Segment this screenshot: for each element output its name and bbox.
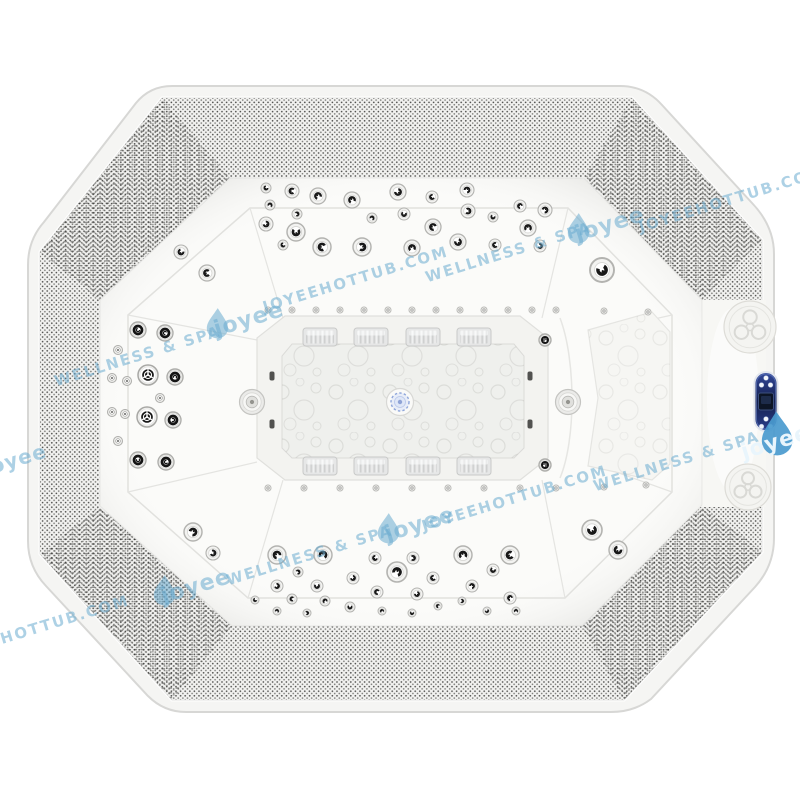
air-injector bbox=[481, 307, 487, 313]
air-injector bbox=[601, 308, 607, 314]
massage-jet bbox=[460, 183, 474, 197]
clear-jet-block bbox=[457, 328, 491, 346]
clear-jet-block bbox=[406, 457, 440, 475]
massage-jet bbox=[259, 217, 273, 231]
massage-jet bbox=[504, 592, 516, 604]
massage-jet bbox=[434, 602, 442, 610]
massage-jet bbox=[483, 607, 491, 615]
massage-jet bbox=[487, 564, 499, 576]
massage-jet bbox=[285, 184, 299, 198]
control-button bbox=[768, 383, 773, 388]
trim-ring-jet bbox=[539, 334, 551, 346]
massage-jet bbox=[398, 208, 410, 220]
massage-jet bbox=[303, 609, 311, 617]
trim-ring-jet bbox=[130, 452, 146, 468]
massage-jet bbox=[273, 607, 281, 615]
mini-jet bbox=[121, 410, 130, 419]
air-injector bbox=[373, 485, 379, 491]
massage-jet bbox=[278, 240, 288, 250]
air-injector bbox=[265, 485, 271, 491]
massage-jet bbox=[458, 597, 466, 605]
massage-jet bbox=[609, 541, 627, 559]
massage-jet bbox=[347, 572, 359, 584]
air-injector bbox=[361, 307, 367, 313]
air-injector bbox=[643, 482, 649, 488]
molded-medallion bbox=[725, 464, 771, 510]
spinner-jet bbox=[138, 365, 158, 385]
massage-jet bbox=[371, 586, 383, 598]
massage-jet bbox=[378, 607, 386, 615]
massage-jet bbox=[454, 546, 472, 564]
massage-jet bbox=[461, 204, 475, 218]
massage-jet bbox=[390, 184, 406, 200]
massage-jet bbox=[450, 234, 466, 250]
massage-jet bbox=[369, 552, 381, 564]
massage-jet bbox=[426, 191, 438, 203]
massage-jet bbox=[501, 546, 519, 564]
trim-ring-jet bbox=[167, 369, 183, 385]
control-button bbox=[764, 376, 769, 381]
trim-ring-jet bbox=[165, 412, 181, 428]
massage-jet bbox=[387, 562, 407, 582]
mini-jet bbox=[108, 408, 117, 417]
air-injector bbox=[409, 485, 415, 491]
massage-jet bbox=[184, 523, 202, 541]
massage-jet bbox=[425, 219, 441, 235]
massage-jet bbox=[287, 223, 305, 241]
control-button bbox=[759, 424, 764, 429]
air-injector bbox=[337, 485, 343, 491]
massage-jet bbox=[174, 245, 188, 259]
air-injector bbox=[313, 307, 319, 313]
drain-led-light bbox=[387, 389, 414, 416]
control-display-glass bbox=[761, 396, 771, 404]
massage-jet bbox=[292, 209, 302, 219]
lounge-seat-texture bbox=[588, 312, 670, 480]
spinner-jet bbox=[137, 407, 157, 427]
mini-jet bbox=[156, 394, 165, 403]
clear-jet-block bbox=[303, 328, 337, 346]
air-injector bbox=[645, 309, 651, 315]
massage-jet bbox=[271, 580, 283, 592]
air-injector bbox=[385, 307, 391, 313]
molded-medallion bbox=[724, 301, 776, 353]
suction-slot bbox=[528, 420, 533, 429]
trim-ring-jet bbox=[158, 454, 174, 470]
air-injector bbox=[529, 307, 535, 313]
air-injector bbox=[481, 485, 487, 491]
clear-jet-block bbox=[406, 328, 440, 346]
clear-jet-block bbox=[303, 457, 337, 475]
massage-jet bbox=[407, 552, 419, 564]
massage-jet bbox=[411, 588, 423, 600]
massage-jet bbox=[206, 546, 220, 560]
massage-jet bbox=[311, 580, 323, 592]
air-injector bbox=[505, 307, 511, 313]
air-injector bbox=[445, 485, 451, 491]
product-photo-stage: WELLNESS & SPAjoyeeJOYEEHOTTUB.COMWELLNE… bbox=[0, 0, 800, 800]
tub-basin bbox=[100, 178, 702, 626]
air-injector bbox=[433, 307, 439, 313]
mini-jet bbox=[114, 437, 123, 446]
suction-slot bbox=[528, 372, 533, 381]
suction-slot bbox=[270, 420, 275, 429]
air-injector bbox=[301, 485, 307, 491]
clear-jet-block bbox=[457, 457, 491, 475]
massage-jet bbox=[408, 609, 416, 617]
trim-ring-jet bbox=[539, 459, 551, 471]
suction-slot bbox=[270, 372, 275, 381]
hot-tub-top-view-photo: WELLNESS & SPAjoyeeJOYEEHOTTUB.COMWELLNE… bbox=[0, 0, 800, 800]
mini-jet bbox=[123, 377, 132, 386]
massage-jet bbox=[590, 258, 614, 282]
massage-jet bbox=[261, 183, 271, 193]
massage-jet bbox=[466, 580, 478, 592]
massage-jet bbox=[488, 212, 498, 222]
control-button bbox=[764, 417, 769, 422]
side-fitting bbox=[556, 390, 581, 415]
massage-jet bbox=[367, 213, 377, 223]
massage-jet bbox=[199, 265, 215, 281]
massage-jet bbox=[287, 594, 297, 604]
massage-jet bbox=[512, 607, 520, 615]
mini-jet bbox=[108, 374, 117, 383]
massage-jet bbox=[582, 520, 602, 540]
massage-jet bbox=[514, 200, 526, 212]
massage-jet bbox=[265, 200, 275, 210]
massage-jet bbox=[538, 203, 552, 217]
massage-jet bbox=[345, 602, 355, 612]
clear-jet-block bbox=[354, 328, 388, 346]
massage-jet bbox=[310, 188, 326, 204]
massage-jet bbox=[353, 238, 371, 256]
side-fitting bbox=[240, 390, 265, 415]
massage-jet bbox=[313, 238, 331, 256]
massage-jet bbox=[427, 572, 439, 584]
trim-ring-jet bbox=[130, 322, 146, 338]
air-injector bbox=[553, 307, 559, 313]
air-injector bbox=[337, 307, 343, 313]
air-injector bbox=[409, 307, 415, 313]
massage-jet bbox=[520, 220, 536, 236]
clear-jet-block bbox=[354, 457, 388, 475]
massage-jet bbox=[320, 596, 330, 606]
massage-jet bbox=[251, 596, 259, 604]
control-button bbox=[759, 383, 764, 388]
massage-jet bbox=[344, 192, 360, 208]
air-injector bbox=[457, 307, 463, 313]
